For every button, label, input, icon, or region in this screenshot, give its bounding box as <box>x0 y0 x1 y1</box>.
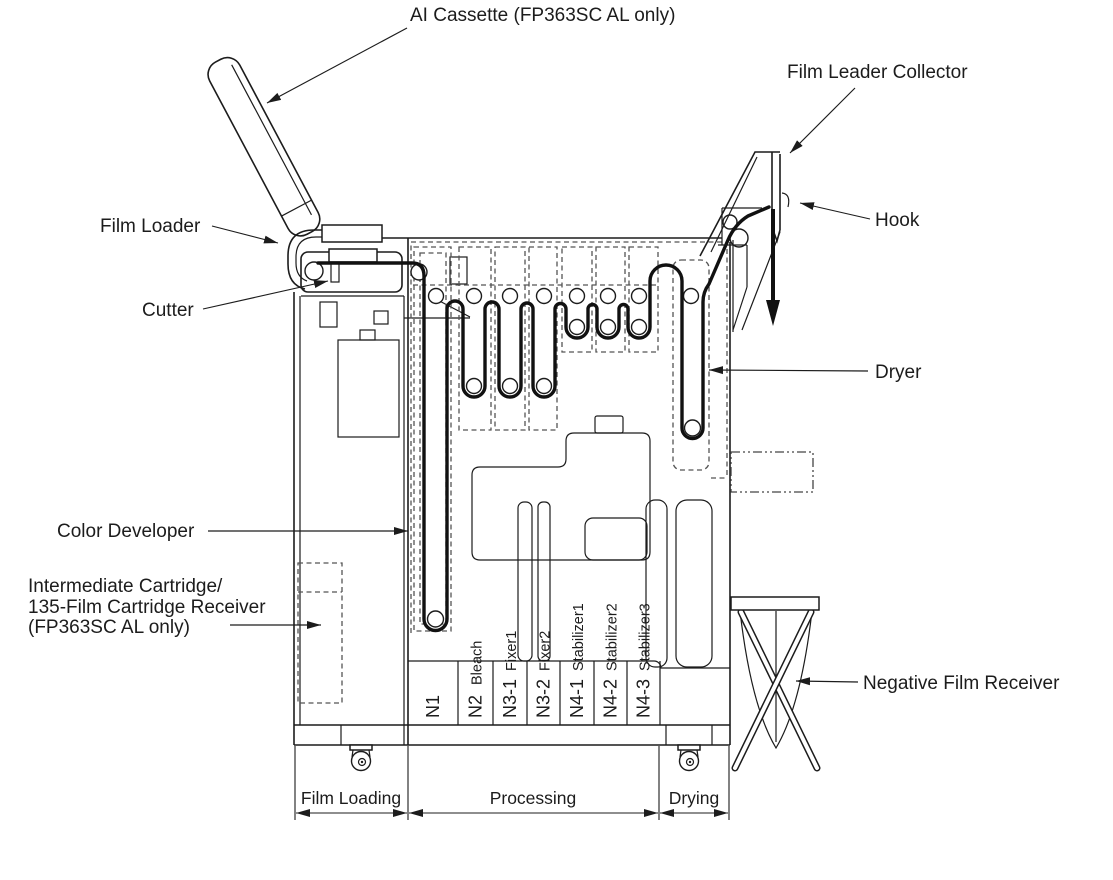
cassette-base-plate <box>322 225 382 242</box>
diagram-canvas: Film Loading Processing Drying N1 N2Blea… <box>0 0 1113 880</box>
section-label-film-loading: Film Loading <box>301 788 401 808</box>
label-negative-film-receiver: Negative Film Receiver <box>863 673 1060 694</box>
film-loader-leader-arrow <box>212 226 278 243</box>
label-film-leader-collector: Film Leader Collector <box>787 62 968 83</box>
negative-film-receiver-leader-arrow <box>796 681 858 682</box>
callout-leaders <box>203 28 870 682</box>
section-label-processing: Processing <box>490 788 577 808</box>
caster-right <box>678 745 700 771</box>
callout-labels: AI Cassette (FP363SC AL only) Film Leade… <box>28 5 1060 694</box>
label-film-loader: Film Loader <box>100 216 201 237</box>
section-label-drying: Drying <box>669 788 720 808</box>
caster-left <box>350 745 372 771</box>
tank-label-n3-2: N3-2Fixer2 <box>534 631 554 718</box>
tank-label-n1: N1 <box>423 695 443 718</box>
label-intermediate-line3: (FP363SC AL only) <box>28 617 190 638</box>
dryer-leader-arrow <box>709 370 868 371</box>
receiver-top-bar <box>731 597 819 610</box>
label-cutter: Cutter <box>142 300 194 321</box>
intermediate-cartridge-receiver-box <box>298 563 342 703</box>
film-leader-collector-leader-arrow <box>790 88 855 153</box>
label-color-developer: Color Developer <box>57 521 195 542</box>
cutter-leader-arrow <box>203 281 328 309</box>
negative-film-receiver <box>731 597 819 768</box>
loader-lid <box>329 249 377 262</box>
hook-icon <box>782 193 789 207</box>
cutter-blade <box>331 263 339 282</box>
panel-indicator <box>374 311 388 324</box>
tank-label-n2: N2Bleach <box>466 641 486 718</box>
side-protrusion <box>731 452 813 492</box>
label-hook: Hook <box>875 210 920 231</box>
film-processor-diagram: Film Loading Processing Drying N1 N2Blea… <box>0 0 1113 880</box>
panel-switch <box>320 302 337 327</box>
ai-cassette-arm <box>203 53 325 241</box>
film-path <box>318 207 769 631</box>
label-intermediate-line1: Intermediate Cartridge/ <box>28 576 223 597</box>
hook-leader-arrow <box>800 203 870 219</box>
internal-machinery <box>472 416 712 667</box>
label-dryer: Dryer <box>875 362 922 383</box>
tank-label-n3-1: N3-1Fixer1 <box>500 631 520 718</box>
label-ai-cassette: AI Cassette (FP363SC AL only) <box>410 5 675 26</box>
tank-dividers <box>458 661 660 725</box>
ai-cassette-leader-arrow <box>267 28 407 103</box>
label-intermediate-line2: 135-Film Cartridge Receiver <box>28 597 266 618</box>
chemical-cartridge-bay <box>338 340 399 437</box>
transport-rollers <box>411 215 748 627</box>
